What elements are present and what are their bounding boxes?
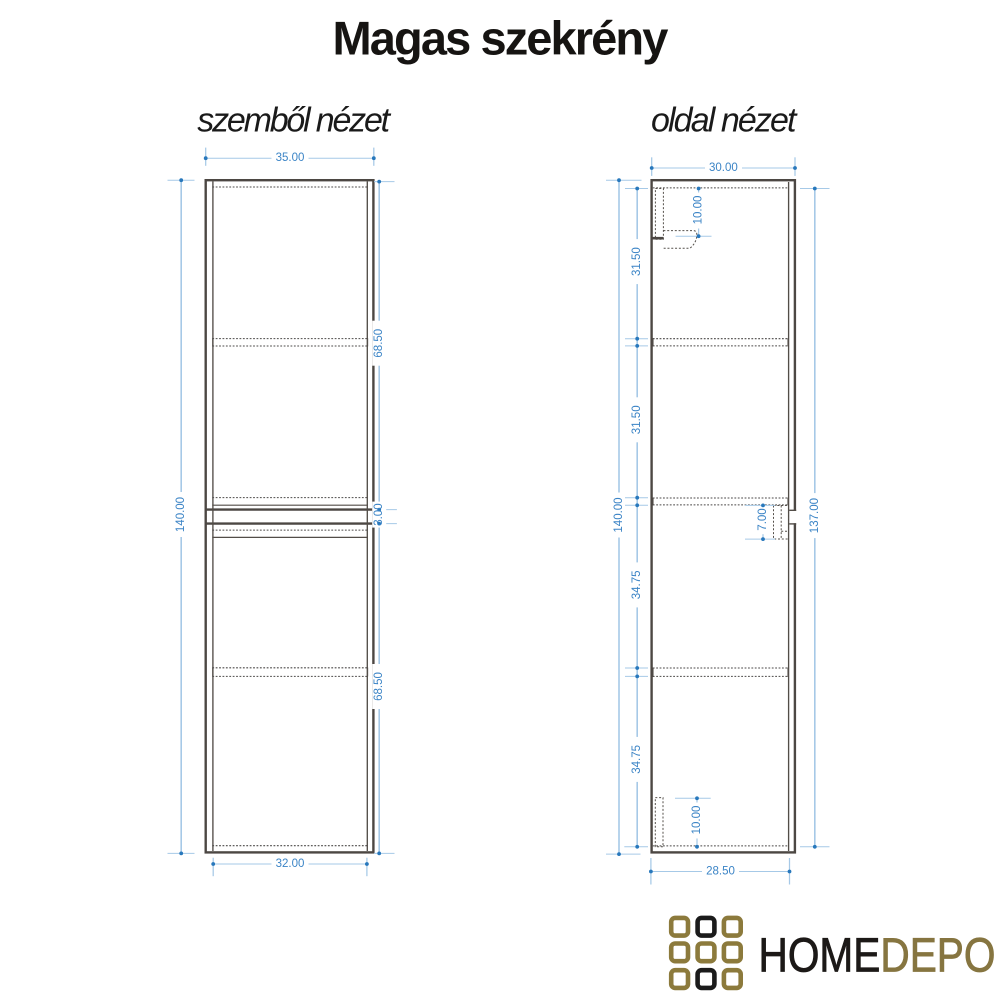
svg-text:3.00: 3.00 — [373, 503, 385, 525]
svg-text:10.00: 10.00 — [691, 806, 703, 835]
svg-text:Magas szekrény: Magas szekrény — [333, 11, 669, 64]
svg-text:31.50: 31.50 — [631, 247, 643, 276]
svg-text:31.50: 31.50 — [631, 405, 643, 434]
svg-text:28.50: 28.50 — [706, 866, 735, 878]
svg-text:137.00: 137.00 — [809, 498, 821, 533]
svg-text:HOMEDEPO: HOMEDEPO — [759, 930, 996, 983]
svg-text:140.00: 140.00 — [613, 497, 625, 532]
svg-text:35.00: 35.00 — [276, 152, 305, 164]
svg-text:szemből nézet: szemből nézet — [197, 102, 391, 140]
svg-text:34.75: 34.75 — [631, 745, 643, 774]
svg-text:30.00: 30.00 — [709, 162, 738, 174]
svg-text:34.75: 34.75 — [631, 571, 643, 600]
svg-text:10.00: 10.00 — [693, 196, 705, 225]
svg-text:68.50: 68.50 — [373, 329, 385, 358]
svg-text:140.00: 140.00 — [175, 497, 187, 532]
svg-text:7.00: 7.00 — [757, 508, 769, 530]
svg-text:32.00: 32.00 — [276, 858, 305, 870]
svg-text:oldal nézet: oldal nézet — [651, 102, 798, 140]
svg-text:68.50: 68.50 — [373, 672, 385, 701]
